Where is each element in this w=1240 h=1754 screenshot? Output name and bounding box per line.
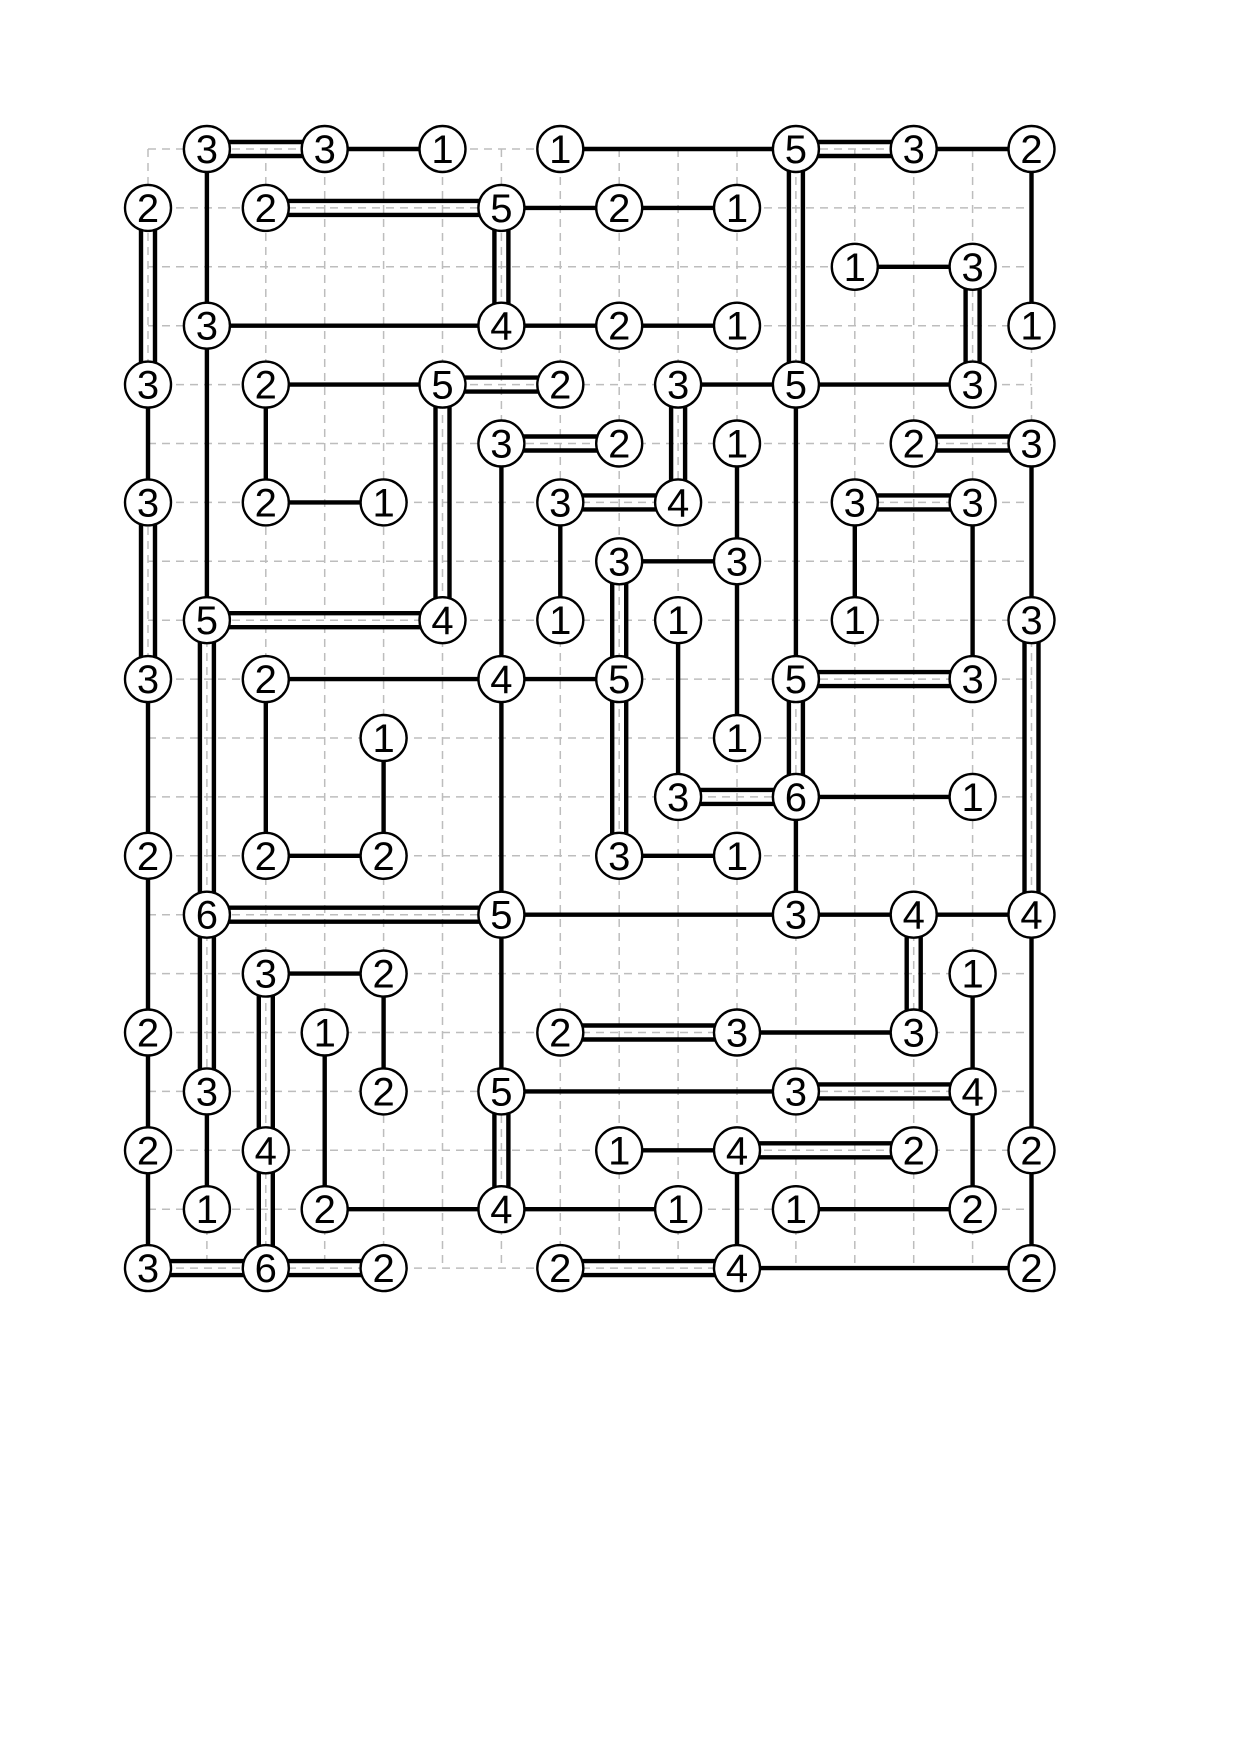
node-value: 3 xyxy=(785,894,807,938)
node-value: 1 xyxy=(372,481,394,525)
node-value: 1 xyxy=(314,1012,336,1056)
node-value: 2 xyxy=(549,364,571,408)
node-value: 5 xyxy=(490,894,512,938)
node-value: 2 xyxy=(1020,1247,1042,1291)
puzzle-page: 3311532225211334211325235332123321343333… xyxy=(0,0,1240,1754)
node-value: 3 xyxy=(785,1070,807,1114)
node-value: 3 xyxy=(844,481,866,525)
node-value: 4 xyxy=(667,481,689,525)
node-value: 1 xyxy=(196,1188,218,1232)
node-value: 2 xyxy=(314,1188,336,1232)
node-value: 5 xyxy=(490,187,512,231)
node-value: 1 xyxy=(844,246,866,290)
node-value: 2 xyxy=(255,481,277,525)
node-value: 3 xyxy=(137,658,159,702)
node-value: 3 xyxy=(667,776,689,820)
node-value: 2 xyxy=(255,658,277,702)
node-value: 4 xyxy=(903,894,925,938)
node-value: 6 xyxy=(196,894,218,938)
node-value: 2 xyxy=(903,423,925,467)
node-value: 4 xyxy=(431,599,453,643)
node-value: 1 xyxy=(549,599,571,643)
node-value: 6 xyxy=(255,1247,277,1291)
node-value: 2 xyxy=(608,187,630,231)
node-value: 4 xyxy=(961,1070,983,1114)
node-value: 2 xyxy=(255,835,277,879)
hashi-board: 3311532225211334211325235332123321343333… xyxy=(0,0,1240,1754)
node-value: 3 xyxy=(196,128,218,172)
node-value: 3 xyxy=(1020,599,1042,643)
node-value: 3 xyxy=(961,658,983,702)
node-value: 3 xyxy=(314,128,336,172)
node-value: 4 xyxy=(1020,894,1042,938)
node-value: 1 xyxy=(844,599,866,643)
node-value: 3 xyxy=(137,481,159,525)
node-value: 3 xyxy=(608,540,630,584)
node-value: 3 xyxy=(549,481,571,525)
node-value: 1 xyxy=(549,128,571,172)
node-value: 1 xyxy=(667,599,689,643)
node-value: 6 xyxy=(785,776,807,820)
node-value: 1 xyxy=(961,776,983,820)
node-value: 5 xyxy=(196,599,218,643)
node-value: 4 xyxy=(490,1188,512,1232)
node-value: 1 xyxy=(726,717,748,761)
node-value: 2 xyxy=(549,1012,571,1056)
node-value: 3 xyxy=(961,364,983,408)
node-value: 3 xyxy=(255,953,277,997)
node-value: 3 xyxy=(137,1247,159,1291)
node-value: 3 xyxy=(903,128,925,172)
node-value: 1 xyxy=(726,835,748,879)
node-value: 2 xyxy=(137,1129,159,1173)
node-value: 2 xyxy=(608,423,630,467)
node-value: 3 xyxy=(1020,423,1042,467)
node-value: 5 xyxy=(490,1070,512,1114)
node-value: 3 xyxy=(196,305,218,349)
node-value: 2 xyxy=(549,1247,571,1291)
node-value: 2 xyxy=(372,953,394,997)
node-value: 5 xyxy=(431,364,453,408)
node-value: 2 xyxy=(255,364,277,408)
node-value: 1 xyxy=(372,717,394,761)
node-value: 2 xyxy=(1020,1129,1042,1173)
node-value: 2 xyxy=(372,1070,394,1114)
node-value: 1 xyxy=(726,423,748,467)
node-value: 4 xyxy=(490,658,512,702)
node-value: 2 xyxy=(137,1012,159,1056)
node-value: 4 xyxy=(255,1129,277,1173)
node-value: 5 xyxy=(608,658,630,702)
node-value: 5 xyxy=(785,128,807,172)
node-value: 3 xyxy=(961,481,983,525)
node-value: 1 xyxy=(785,1188,807,1232)
node-value: 1 xyxy=(726,187,748,231)
node-value: 3 xyxy=(137,364,159,408)
node-value: 3 xyxy=(961,246,983,290)
node-value: 2 xyxy=(255,187,277,231)
node-value: 3 xyxy=(903,1012,925,1056)
node-value: 3 xyxy=(667,364,689,408)
node-value: 2 xyxy=(903,1129,925,1173)
node-value: 2 xyxy=(137,187,159,231)
node-value: 1 xyxy=(667,1188,689,1232)
node-value: 3 xyxy=(608,835,630,879)
node-value: 3 xyxy=(726,1012,748,1056)
node-value: 4 xyxy=(490,305,512,349)
node-value: 1 xyxy=(961,953,983,997)
node-value: 1 xyxy=(608,1129,630,1173)
node-value: 1 xyxy=(726,305,748,349)
node-value: 2 xyxy=(137,835,159,879)
node-value: 2 xyxy=(372,1247,394,1291)
node-value: 2 xyxy=(372,835,394,879)
node-value: 1 xyxy=(431,128,453,172)
node-value: 2 xyxy=(1020,128,1042,172)
node-value: 2 xyxy=(608,305,630,349)
node-value: 3 xyxy=(196,1070,218,1114)
node-value: 1 xyxy=(1020,305,1042,349)
node-value: 5 xyxy=(785,364,807,408)
node-value: 4 xyxy=(726,1247,748,1291)
node-value: 5 xyxy=(785,658,807,702)
node-value: 4 xyxy=(726,1129,748,1173)
node-value: 3 xyxy=(490,423,512,467)
node-value: 3 xyxy=(726,540,748,584)
node-value: 2 xyxy=(961,1188,983,1232)
